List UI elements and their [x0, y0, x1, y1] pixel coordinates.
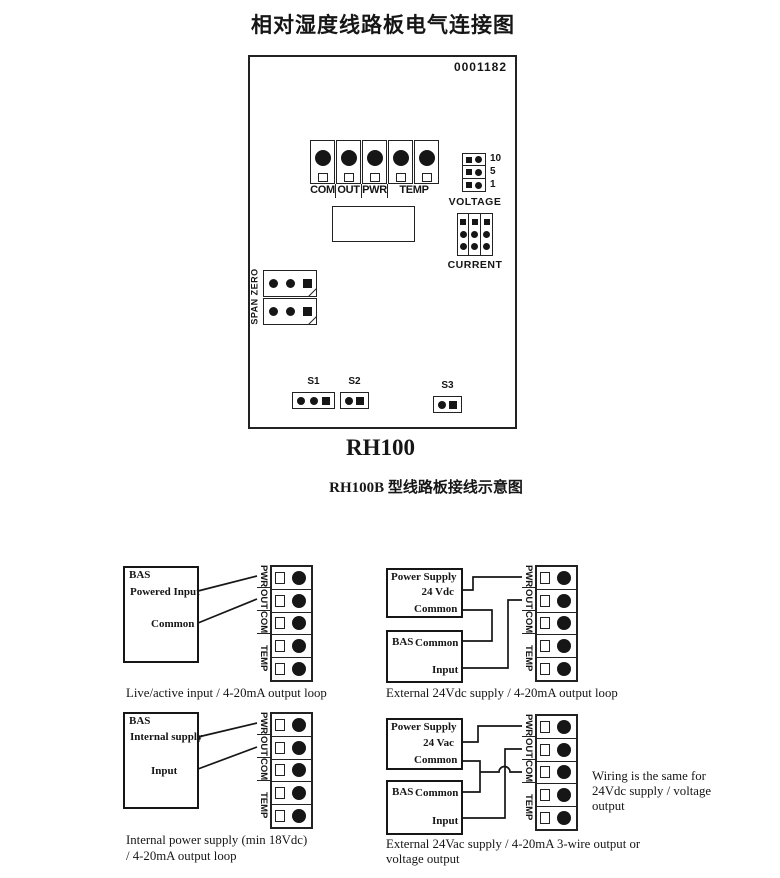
terminal-pin-icon	[275, 663, 285, 675]
box-line: Common	[414, 754, 457, 766]
strip-terminal	[272, 805, 311, 827]
bas-box: BAS Internal supply Input	[123, 712, 199, 809]
strip-terminal	[272, 737, 311, 760]
wire-internal-supply-to-pwr	[198, 723, 257, 737]
terminal-block	[414, 140, 439, 184]
strip-terminal	[537, 567, 576, 590]
terminal-screw-icon	[557, 616, 571, 630]
terminal-screw-icon	[292, 571, 306, 585]
terminal-pin-icon	[275, 572, 285, 584]
trimmer-pin-icon	[286, 307, 295, 316]
strip-label-out: OUT	[257, 735, 270, 758]
jumper-pin-icon	[475, 169, 482, 176]
terminal-strip: PWR OUT COM TEMP	[257, 712, 313, 829]
strip-label-temp: TEMP	[522, 634, 535, 682]
terminal-block	[362, 140, 387, 184]
trimmer-pin-icon	[286, 279, 295, 288]
terminal-screw-icon	[393, 150, 409, 166]
wire-common-link	[463, 761, 480, 792]
wire-input-to-out	[463, 749, 522, 818]
strip-terminal	[537, 716, 576, 739]
zero-trimmer	[263, 270, 317, 297]
jumper-column	[469, 213, 481, 256]
board-model-name: RH100	[248, 435, 513, 461]
switch-pin-icon	[345, 397, 353, 405]
terminal-screw-icon	[341, 150, 357, 166]
strip-label-pwr: PWR	[257, 712, 270, 735]
jumper-pin-icon	[460, 243, 467, 250]
strip-label-temp: TEMP	[522, 783, 535, 831]
main-terminal-labels: COM OUT PWR TEMP	[310, 184, 440, 198]
box-title: BAS	[129, 569, 150, 581]
jumper-pin-icon	[471, 243, 478, 250]
current-label: CURRENT	[440, 259, 510, 271]
switch-pin-icon	[297, 397, 305, 405]
terminal-strip: PWR OUT COM TEMP	[522, 565, 578, 682]
box-title: BAS	[129, 715, 150, 727]
wire-common-link	[463, 610, 492, 641]
voltage-value-5: 5	[490, 165, 501, 178]
terminal-screw-icon	[557, 662, 571, 676]
trimmer-pad-icon	[303, 307, 312, 316]
strip-labels: PWR OUT COM TEMP	[522, 714, 535, 831]
box-line: Internal supply	[130, 731, 202, 743]
terminal-pin-icon	[275, 764, 285, 776]
terminal-pin-icon	[370, 173, 380, 182]
jumper-pad-icon	[466, 182, 472, 188]
trimmer-pin-icon	[269, 307, 278, 316]
wire-common-to-out	[198, 599, 257, 623]
box-line: Common	[415, 787, 458, 799]
trimmer-pad-icon	[303, 279, 312, 288]
strip-terminal	[272, 567, 311, 590]
display-window	[332, 206, 415, 242]
strip-terminal	[272, 590, 311, 613]
strip-body	[270, 565, 313, 682]
strip-label-temp: TEMP	[257, 634, 270, 682]
main-terminal-strip	[310, 140, 439, 184]
terminal-pin-icon	[275, 719, 285, 731]
terminal-screw-icon	[315, 150, 331, 166]
strip-label-com: COM	[522, 611, 535, 634]
terminal-block	[336, 140, 361, 184]
box-line: 24 Vac	[423, 737, 454, 749]
terminal-screw-icon	[557, 720, 571, 734]
terminal-pin-icon	[422, 173, 432, 182]
span-zero-label: SPAN ZERO	[250, 267, 261, 327]
terminal-pin-icon	[275, 810, 285, 822]
jumper-pin-icon	[475, 182, 482, 189]
switch-label-s1: S1	[292, 376, 335, 387]
box-line: Common	[151, 618, 194, 630]
wire-24vac-to-pwr	[463, 726, 522, 742]
terminal-pin-icon	[540, 663, 550, 675]
strip-terminal	[272, 714, 311, 737]
switch-label-s3: S3	[433, 380, 462, 391]
terminal-pin-icon	[275, 787, 285, 799]
jumper-row	[462, 153, 486, 166]
box-line: Input	[151, 765, 177, 777]
strip-terminal	[537, 784, 576, 807]
strip-terminal	[272, 760, 311, 783]
switch-s3	[433, 396, 462, 413]
voltage-value-10: 10	[490, 152, 501, 165]
terminal-pin-icon	[540, 721, 550, 733]
strip-terminal	[272, 635, 311, 658]
terminal-screw-icon	[292, 763, 306, 777]
bas-box: BAS Powered Input Common	[123, 566, 199, 663]
strip-label-out: OUT	[522, 737, 535, 760]
box-line: Input	[432, 664, 458, 676]
terminal-screw-icon	[292, 741, 306, 755]
terminal-screw-icon	[557, 571, 571, 585]
board-serial-number: 0001182	[454, 60, 507, 74]
diagram-caption: voltage output	[386, 852, 460, 867]
box-line: Common	[414, 603, 457, 615]
terminal-label-temp: TEMP	[388, 184, 440, 198]
voltage-jumper-block	[462, 153, 486, 192]
strip-labels: PWR OUT COM TEMP	[257, 565, 270, 682]
switch-label-s2: S2	[340, 376, 369, 387]
document-page: 相对湿度线路板电气连接图 0001182 COM OUT PWR TEMP 10	[0, 0, 780, 878]
pcb-outline: 0001182 COM OUT PWR TEMP 10 5 1 VOL	[248, 55, 517, 429]
diagram-caption: Live/active input / 4-20mA output loop	[126, 686, 327, 701]
terminal-strip: PWR OUT COM TEMP	[522, 714, 578, 831]
strip-terminal	[537, 613, 576, 636]
box-line: Powered Input	[130, 586, 200, 598]
box-line: 24 Vdc	[422, 586, 455, 598]
wire-powered-input-to-pwr	[198, 576, 257, 591]
terminal-screw-icon	[557, 743, 571, 757]
strip-label-out: OUT	[522, 588, 535, 611]
switch-pad-icon	[449, 401, 457, 409]
current-jumper-block	[457, 213, 493, 256]
terminal-label-pwr: PWR	[362, 184, 388, 198]
corner-notch	[308, 316, 316, 324]
strip-label-com: COM	[257, 611, 270, 634]
terminal-pin-icon	[275, 742, 285, 754]
jumper-pad-icon	[472, 219, 478, 225]
switch-pad-icon	[322, 397, 330, 405]
terminal-screw-icon	[557, 765, 571, 779]
strip-terminal	[272, 613, 311, 636]
terminal-pin-icon	[540, 789, 550, 801]
box-title: BAS	[392, 636, 413, 648]
terminal-pin-icon	[540, 595, 550, 607]
corner-notch	[308, 288, 316, 296]
box-title: Power Supply	[391, 571, 457, 583]
voltage-values: 10 5 1	[490, 152, 501, 191]
terminal-pin-icon	[344, 173, 354, 182]
terminal-block	[310, 140, 335, 184]
terminal-strip: PWR OUT COM TEMP	[257, 565, 313, 682]
strip-terminal	[272, 782, 311, 805]
strip-label-com: COM	[522, 760, 535, 783]
terminal-label-out: OUT	[336, 184, 362, 198]
strip-label-pwr: PWR	[257, 565, 270, 588]
jumper-pin-icon	[483, 243, 490, 250]
bas-box: BAS Common Input	[386, 780, 463, 835]
strip-terminal	[272, 658, 311, 680]
trimmer-pin-icon	[269, 279, 278, 288]
wire-input-to-out	[463, 600, 522, 668]
terminal-screw-icon	[292, 809, 306, 823]
strip-body	[270, 712, 313, 829]
terminal-screw-icon	[557, 811, 571, 825]
switch-s2	[340, 392, 369, 409]
switch-pad-icon	[356, 397, 364, 405]
strip-terminal	[537, 762, 576, 785]
terminal-block	[388, 140, 413, 184]
box-title: BAS	[392, 786, 413, 798]
switch-pin-icon	[438, 401, 446, 409]
bas-box: BAS Common Input	[386, 630, 463, 683]
terminal-pin-icon	[540, 640, 550, 652]
strip-labels: PWR OUT COM TEMP	[257, 712, 270, 829]
board-caption: RH100B 型线路板接线示意图	[266, 476, 586, 497]
strip-label-pwr: PWR	[522, 714, 535, 737]
terminal-screw-icon	[367, 150, 383, 166]
terminal-pin-icon	[540, 572, 550, 584]
jumper-pad-icon	[460, 219, 466, 225]
terminal-pin-icon	[540, 766, 550, 778]
wire-common-to-com-with-hop	[480, 767, 522, 772]
box-line: Input	[432, 815, 458, 827]
jumper-column	[457, 213, 469, 256]
box-line: Common	[415, 637, 458, 649]
voltage-label: VOLTAGE	[444, 196, 506, 208]
power-supply-box: Power Supply 24 Vdc Common	[386, 568, 463, 618]
strip-label-pwr: PWR	[522, 565, 535, 588]
terminal-screw-icon	[292, 786, 306, 800]
strip-terminal	[537, 590, 576, 613]
terminal-pin-icon	[275, 595, 285, 607]
terminal-screw-icon	[557, 788, 571, 802]
diagram-caption: External 24Vac supply / 4-20mA 3-wire ou…	[386, 837, 640, 852]
voltage-value-1: 1	[490, 178, 501, 191]
jumper-pin-icon	[483, 231, 490, 238]
box-title: Power Supply	[391, 721, 457, 733]
terminal-pin-icon	[318, 173, 328, 182]
strip-label-temp: TEMP	[257, 781, 270, 829]
jumper-row	[462, 179, 486, 192]
switch-s1	[292, 392, 335, 409]
strip-labels: PWR OUT COM TEMP	[522, 565, 535, 682]
jumper-pad-icon	[466, 169, 472, 175]
diagram-caption: Internal power supply (min 18Vdc)	[126, 833, 307, 848]
terminal-screw-icon	[419, 150, 435, 166]
strip-body	[535, 565, 578, 682]
strip-terminal	[537, 739, 576, 762]
terminal-pin-icon	[275, 617, 285, 629]
strip-terminal	[537, 635, 576, 658]
strip-label-com: COM	[257, 758, 270, 781]
wire-24vdc-to-pwr	[463, 577, 522, 590]
strip-terminal	[537, 658, 576, 680]
diagram-caption: External 24Vdc supply / 4-20mA output lo…	[386, 686, 618, 701]
switch-pin-icon	[310, 397, 318, 405]
span-trimmer	[263, 298, 317, 325]
note-line: output	[592, 799, 732, 814]
terminal-pin-icon	[275, 640, 285, 652]
note-line: 24Vdc supply / voltage	[592, 784, 732, 799]
terminal-screw-icon	[292, 616, 306, 630]
terminal-screw-icon	[557, 594, 571, 608]
terminal-label-com: COM	[310, 184, 336, 198]
jumper-pad-icon	[466, 157, 472, 163]
jumper-row	[462, 166, 486, 179]
page-title: 相对湿度线路板电气连接图	[0, 9, 766, 39]
power-supply-box: Power Supply 24 Vac Common	[386, 718, 463, 770]
terminal-screw-icon	[557, 639, 571, 653]
jumper-pin-icon	[471, 231, 478, 238]
note-line: Wiring is the same for	[592, 769, 732, 784]
strip-body	[535, 714, 578, 831]
terminal-screw-icon	[292, 662, 306, 676]
jumper-column	[481, 213, 493, 256]
jumper-pin-icon	[460, 231, 467, 238]
wire-input-to-out	[198, 747, 257, 769]
strip-terminal	[537, 807, 576, 829]
terminal-pin-icon	[396, 173, 406, 182]
wiring-note: Wiring is the same for 24Vdc supply / vo…	[592, 769, 732, 814]
terminal-screw-icon	[292, 594, 306, 608]
terminal-pin-icon	[540, 812, 550, 824]
terminal-pin-icon	[540, 744, 550, 756]
jumper-pad-icon	[484, 219, 490, 225]
terminal-screw-icon	[292, 639, 306, 653]
strip-label-out: OUT	[257, 588, 270, 611]
terminal-screw-icon	[292, 718, 306, 732]
terminal-pin-icon	[540, 617, 550, 629]
diagram-caption: / 4-20mA output loop	[126, 849, 237, 864]
jumper-pin-icon	[475, 156, 482, 163]
